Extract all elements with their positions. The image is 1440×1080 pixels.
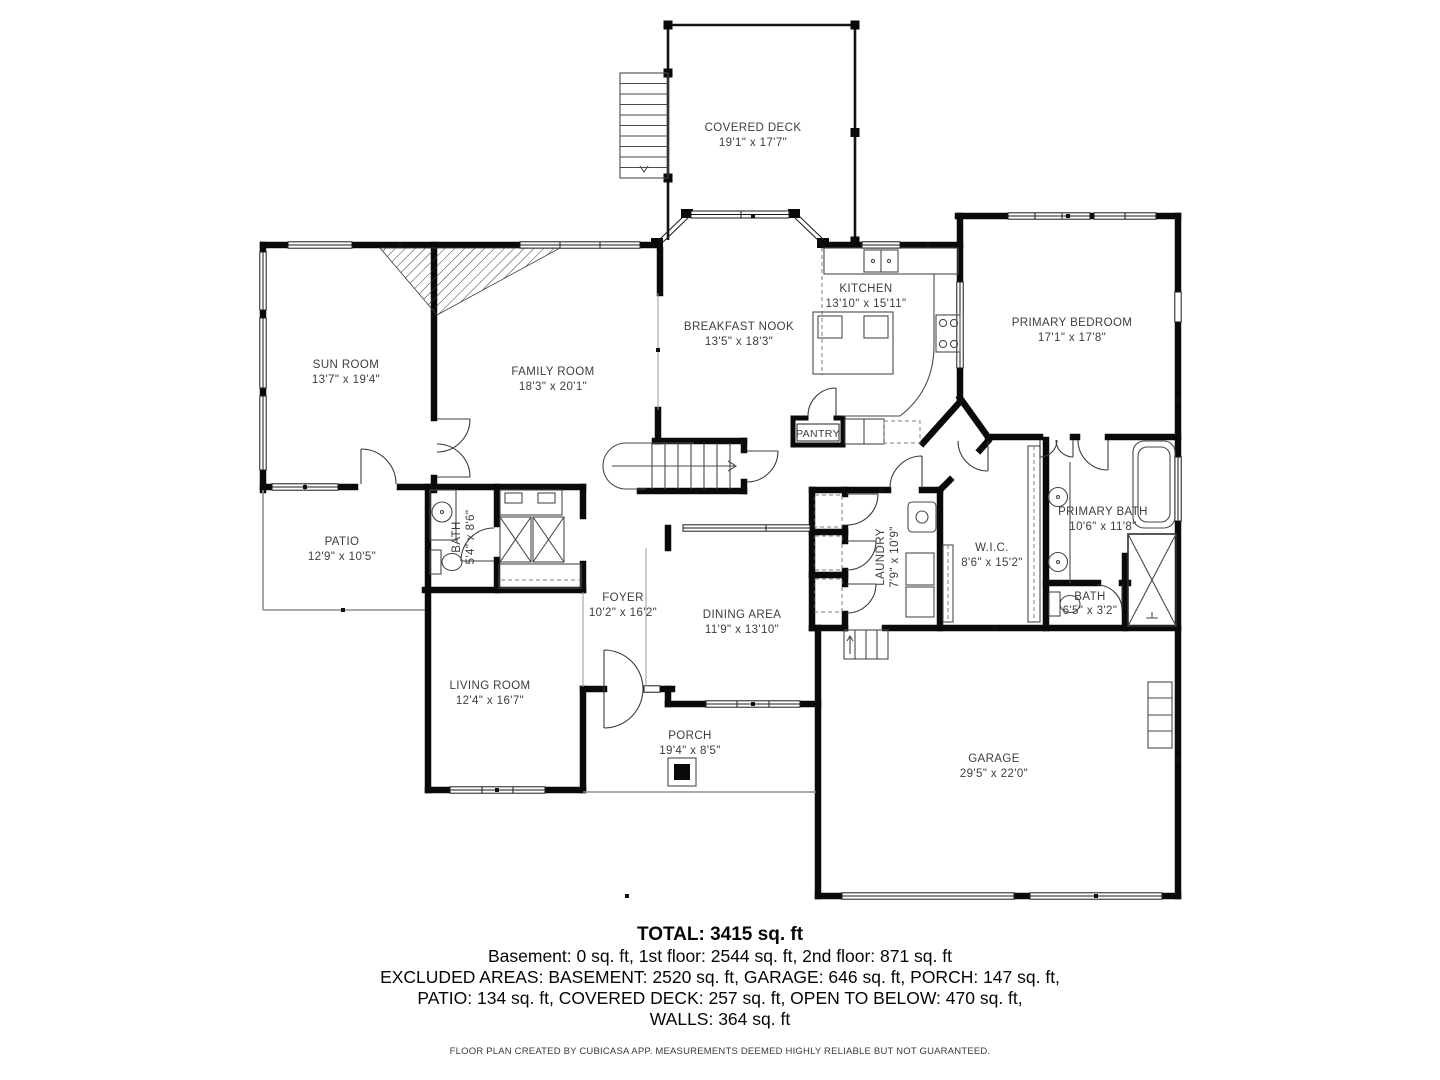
label-garage: GARAGE xyxy=(968,753,1020,765)
laundry-fixtures xyxy=(815,446,1040,622)
dims-porch: 19'4" x 8'5" xyxy=(659,745,720,757)
vanity-sink-2 xyxy=(1049,553,1068,572)
garage-fixtures xyxy=(844,630,1172,748)
wic-closet-rods xyxy=(943,446,1040,622)
dims-family-room: 18'3" x 20'1" xyxy=(519,381,587,393)
dims-kitchen: 13'10" x 15'11" xyxy=(825,298,906,310)
excluded-areas-1: EXCLUDED AREAS: BASEMENT: 2520 sq. ft, G… xyxy=(0,967,1440,988)
floorplan-drawing: COVERED DECK 19'1" x 17'7" KITCHEN 13'10… xyxy=(0,0,1440,910)
dryer xyxy=(906,587,934,617)
utility-sink xyxy=(908,502,936,532)
deck-stairs xyxy=(620,73,668,178)
kitchen-fixtures xyxy=(813,248,960,444)
dims-living-room: 12'4" x 16'7" xyxy=(456,695,524,707)
closet-shelf xyxy=(499,564,581,588)
primary-bath-fixtures xyxy=(1049,441,1177,626)
label-primary-bedroom: PRIMARY BEDROOM xyxy=(1012,317,1133,329)
label-kitchen: KITCHEN xyxy=(839,283,892,295)
label-dining-area: DINING AREA xyxy=(703,609,782,621)
label-patio: PATIO xyxy=(325,536,360,548)
label-laundry: LAUNDRY xyxy=(875,528,887,586)
toilet2-tank xyxy=(1049,592,1060,616)
dims-laundry: 7'9" x 10'9" xyxy=(889,526,901,587)
area-summary: TOTAL: 3415 sq. ft Basement: 0 sq. ft, 1… xyxy=(0,924,1440,1030)
toilet-bowl xyxy=(442,554,462,571)
label-porch: PORCH xyxy=(668,730,712,742)
washer xyxy=(906,553,934,585)
shower xyxy=(1128,534,1176,626)
dims-covered-deck: 19'1" x 17'7" xyxy=(719,137,787,149)
footer-disclaimer: FLOOR PLAN CREATED BY CUBICASA APP. MEAS… xyxy=(0,1046,1440,1057)
bifold-closet xyxy=(500,517,564,562)
label-living-room: LIVING ROOM xyxy=(449,680,530,692)
bath-sink xyxy=(432,502,452,522)
floor-areas: Basement: 0 sq. ft, 1st floor: 2544 sq. … xyxy=(0,946,1440,967)
label-primary-bath: PRIMARY BATH xyxy=(1058,506,1148,518)
vanity-sink xyxy=(1049,488,1068,507)
dims-dining-area: 11'9" x 13'10" xyxy=(705,624,779,636)
label-bath: BATH xyxy=(451,521,463,552)
kitchen-island xyxy=(813,312,893,374)
dims-primary-bedroom: 17'1" x 17'8" xyxy=(1038,332,1106,344)
dims-wic: 8'6" x 15'2" xyxy=(961,557,1022,569)
label-bath-2: BATH xyxy=(1074,591,1105,603)
dims-foyer: 10'2" x 16'2" xyxy=(589,607,657,619)
floorplan-page: { "floorplan": { "rooms": [ {"name": "CO… xyxy=(0,0,1440,1080)
pantry-label-box: PANTRY xyxy=(796,424,840,441)
label-pantry: PANTRY xyxy=(796,428,840,440)
patio-boundary xyxy=(263,490,425,610)
label-sun-room: SUN ROOM xyxy=(313,359,379,371)
dims-bath-2: 6'5" x 3'2" xyxy=(1063,605,1118,617)
label-wic: W.I.C. xyxy=(975,542,1009,554)
porch-column xyxy=(668,758,696,786)
excluded-areas-2: PATIO: 134 sq. ft, COVERED DECK: 257 sq.… xyxy=(0,988,1440,1009)
label-covered-deck: COVERED DECK xyxy=(705,122,802,134)
dims-primary-bath: 10'6" x 11'8" xyxy=(1069,521,1136,533)
total-area: TOTAL: 3415 sq. ft xyxy=(0,924,1440,946)
dims-breakfast-nook: 13'5" x 18'3" xyxy=(705,336,773,348)
label-foyer: FOYER xyxy=(602,592,644,604)
main-stairs xyxy=(603,443,736,489)
dims-bath: 5'4" x 8'6" xyxy=(465,510,477,565)
fireplace xyxy=(380,248,560,315)
garage-doors xyxy=(842,893,1162,899)
toilet-tank xyxy=(430,550,441,574)
bay-window xyxy=(651,209,829,248)
room-labels: COVERED DECK 19'1" x 17'7" KITCHEN 13'10… xyxy=(308,122,1148,780)
dims-garage: 29'5" x 22'0" xyxy=(960,768,1028,780)
excluded-areas-3: WALLS: 364 sq. ft xyxy=(0,1009,1440,1030)
dims-sun-room: 13'7" x 19'4" xyxy=(312,374,380,386)
label-family-room: FAMILY ROOM xyxy=(511,366,594,378)
pantry-door xyxy=(808,388,836,416)
label-breakfast-nook: BREAKFAST NOOK xyxy=(684,321,794,333)
dims-patio: 12'9" x 10'5" xyxy=(308,551,376,563)
front-door xyxy=(604,650,643,728)
